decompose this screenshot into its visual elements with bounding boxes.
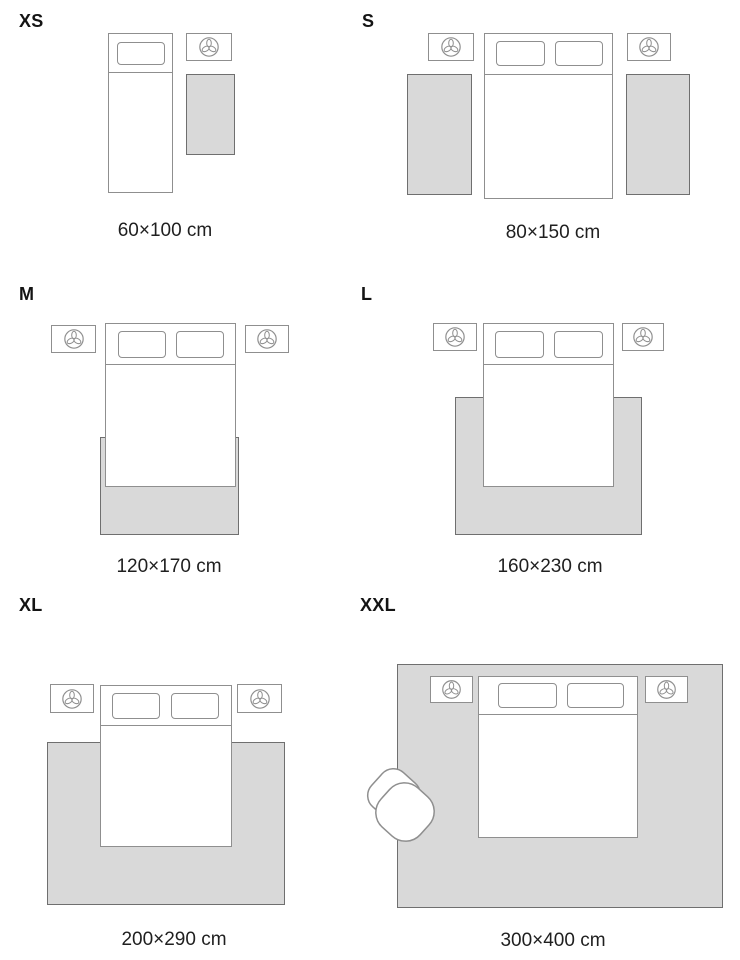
nightstand-left [51, 325, 96, 353]
plant-icon [656, 679, 677, 700]
size-label-l: L [361, 285, 372, 303]
nightstand-right [237, 684, 282, 713]
pillow-right [554, 331, 603, 358]
plant-icon [632, 326, 654, 348]
dimension-label-l: 160×230 cm [497, 557, 602, 576]
nightstand-right [627, 33, 671, 61]
nightstand-left [433, 323, 477, 351]
bed-headboard-divider [485, 74, 612, 75]
armchair [360, 762, 446, 854]
dimension-label-m: 120×170 cm [116, 557, 221, 576]
plant-icon [256, 328, 278, 350]
nightstand-right [645, 676, 688, 703]
bed-double [100, 685, 232, 847]
bed-headboard-divider [109, 72, 172, 73]
nightstand-left [50, 684, 94, 713]
dimension-label-xxl: 300×400 cm [500, 931, 605, 950]
bed-double [478, 676, 638, 838]
pillow-left [118, 331, 166, 358]
bed-headboard-divider [101, 725, 231, 726]
dimension-label-xl: 200×290 cm [121, 930, 226, 949]
pillow [117, 42, 165, 65]
size-label-xxl: XXL [360, 596, 396, 614]
plant-icon [249, 688, 271, 710]
dimension-label-xs: 60×100 cm [118, 221, 213, 240]
pillow-left [496, 41, 545, 66]
pillow-right [171, 693, 219, 719]
size-label-s: S [362, 12, 374, 30]
plant-icon [440, 36, 462, 58]
nightstand-right [622, 323, 664, 351]
size-label-xl: XL [19, 596, 43, 614]
size-label-m: M [19, 285, 34, 303]
plant-icon [444, 326, 466, 348]
pillow-right [555, 41, 603, 66]
size-label-xs: XS [19, 12, 44, 30]
rug-left-runner [407, 74, 472, 195]
pillow-left [498, 683, 557, 708]
rug-right-runner [626, 74, 690, 195]
rug-size-guide: XS 60×100 cm S 80×150 cm M [0, 0, 740, 960]
nightstand-left [430, 676, 473, 703]
bed-headboard-divider [484, 364, 613, 365]
pillow-right [176, 331, 224, 358]
pillow-right [567, 683, 624, 708]
bed-double [105, 323, 236, 487]
nightstand-right [245, 325, 289, 353]
plant-icon [441, 679, 462, 700]
nightstand [186, 33, 232, 61]
plant-icon [638, 36, 660, 58]
rug [186, 74, 235, 155]
pillow-left [112, 693, 160, 719]
bed-headboard-divider [106, 364, 235, 365]
plant-icon [63, 328, 85, 350]
bed-double [483, 323, 614, 487]
dimension-label-s: 80×150 cm [506, 223, 601, 242]
bed-single [108, 33, 173, 193]
bed-double [484, 33, 613, 199]
pillow-left [495, 331, 544, 358]
plant-icon [61, 688, 83, 710]
bed-headboard-divider [479, 714, 637, 715]
plant-icon [198, 36, 220, 58]
nightstand-left [428, 33, 474, 61]
